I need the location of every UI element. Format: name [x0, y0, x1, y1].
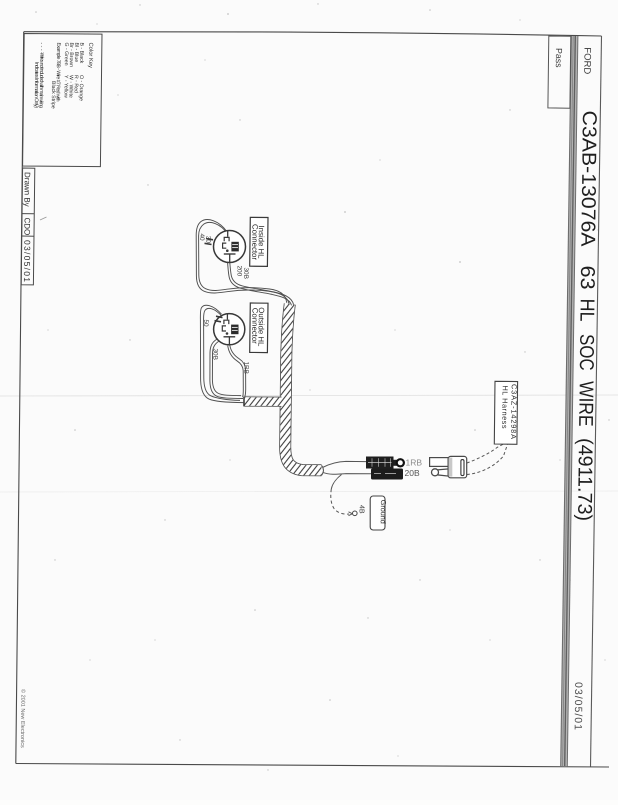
svg-text:03/05/01: 03/05/01 — [22, 240, 33, 282]
svg-text:Ground: Ground — [379, 500, 388, 524]
svg-text:Color Key: Color Key — [87, 42, 93, 68]
svg-text:HL Harness: HL Harness — [500, 385, 510, 428]
svg-text:(4911.73): (4911.73) — [573, 438, 596, 521]
svg-text:20B: 20B — [405, 468, 420, 478]
svg-text:© 2001 New Electronics: © 2001 New Electronics — [19, 689, 27, 748]
svg-text:1RB: 1RB — [242, 361, 249, 374]
svg-text:30B: 30B — [242, 267, 249, 278]
svg-text:03/05/01: 03/05/01 — [572, 682, 585, 730]
svg-text:50: 50 — [202, 319, 209, 327]
svg-text:Black Stripe: Black Stripe — [50, 81, 56, 109]
svg-text:200: 200 — [235, 265, 242, 276]
svg-text:CDO: CDO — [22, 217, 31, 235]
svg-text:WIRE: WIRE — [574, 381, 597, 427]
svg-text:Y - Yellow: Y - Yellow — [62, 75, 68, 98]
svg-text:Connector: Connector — [250, 224, 259, 260]
svg-text:FORD: FORD — [581, 47, 592, 74]
svg-text:1RB: 1RB — [406, 458, 423, 468]
svg-text:Indicates Information Only): Indicates Information Only) — [33, 62, 40, 108]
svg-text:SOC: SOC — [575, 334, 597, 371]
svg-text:C3AB-13076A: C3AB-13076A — [576, 110, 600, 247]
svg-text:30B: 30B — [211, 348, 218, 359]
svg-text:40: 40 — [198, 233, 205, 241]
svg-text:Pass: Pass — [554, 48, 564, 68]
svg-text:30: 30 — [204, 236, 211, 244]
svg-text:Connector: Connector — [250, 308, 259, 344]
svg-text:4B: 4B — [358, 505, 365, 514]
svg-text:63: 63 — [576, 265, 598, 289]
svg-text:HL: HL — [575, 298, 597, 321]
svg-text:Drawn By: Drawn By — [22, 172, 31, 207]
svg-text:G - Green: G - Green — [63, 42, 69, 65]
